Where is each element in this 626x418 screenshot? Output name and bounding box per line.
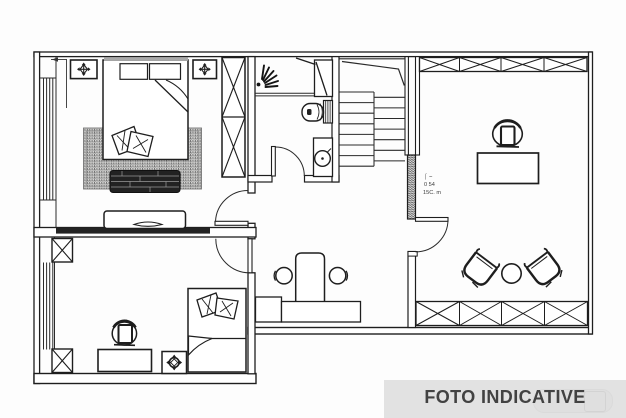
svg-text:15C. m: 15C. m [423, 190, 441, 196]
svg-text:0 54: 0 54 [424, 182, 435, 188]
svg-text:⌠ ⌢: ⌠ ⌢ [424, 173, 433, 180]
